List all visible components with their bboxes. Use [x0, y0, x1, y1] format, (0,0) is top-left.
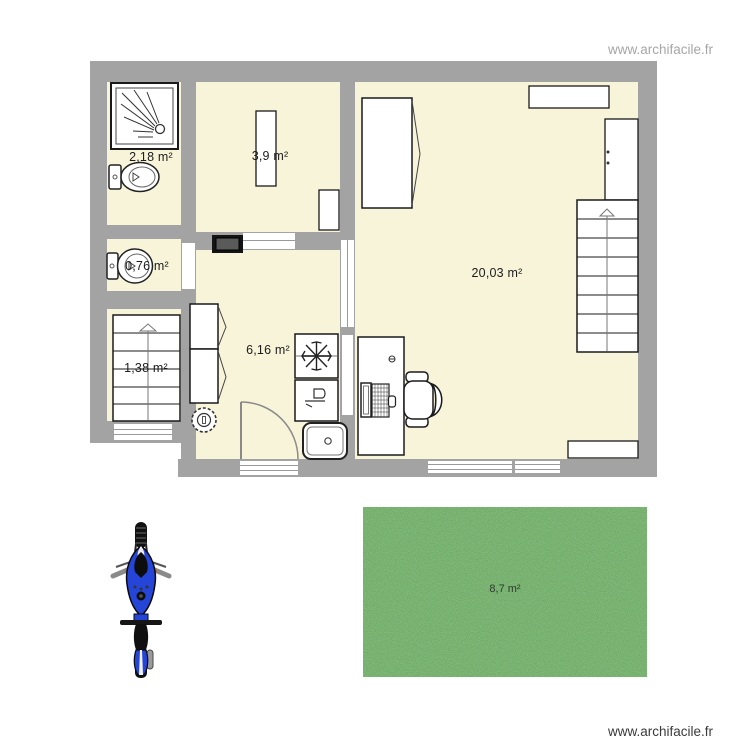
- kitchen-living-window: [341, 240, 354, 327]
- wall-top: [90, 61, 657, 82]
- kitchen-area-label: 6,16 m²: [246, 343, 290, 357]
- living-area-label: 20,03 m²: [472, 266, 523, 280]
- motorcycle-icon: [110, 520, 172, 678]
- bedroom-kitchen-window: [243, 233, 295, 249]
- bathroom-area-label: 2,18 m²: [129, 150, 173, 164]
- stairwell-window: [114, 424, 172, 440]
- wall-right: [638, 61, 657, 477]
- bedroom-area-label: 3,9 m²: [252, 149, 289, 163]
- wall-left: [90, 61, 107, 443]
- kitchen-living-passage: [342, 335, 353, 415]
- wc-area-label: 0,76 m²: [125, 259, 169, 273]
- stairwell-area-label: 1,38 m²: [124, 361, 168, 375]
- garden-area-label: 8,7 m²: [489, 583, 520, 595]
- kitchen-door-threshold: [240, 461, 298, 475]
- watermark-bottom-right: www.archifacile.fr: [608, 724, 713, 739]
- living-window: [428, 461, 560, 473]
- wc-door-opening: [182, 243, 195, 289]
- watermark-top-right: www.archifacile.fr: [608, 42, 713, 57]
- floor-plan-canvas: 8,7 m²: [0, 0, 750, 750]
